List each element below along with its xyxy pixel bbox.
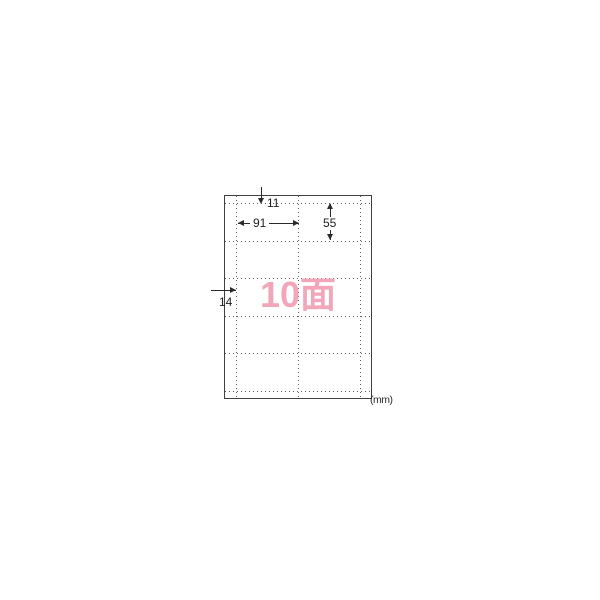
- arrow-up-icon: [327, 203, 333, 209]
- dim-label-cell-width: 91: [250, 217, 269, 230]
- arrow-down-icon: [327, 234, 333, 240]
- diagram-stage: 10面 11 91 55 14 (mm): [0, 0, 600, 600]
- perforation-line-horizontal-1: [225, 203, 371, 204]
- perforation-line-horizontal-6: [225, 391, 371, 392]
- dim-label-top-margin: 11: [267, 197, 279, 210]
- perforation-line-horizontal-2: [225, 241, 371, 242]
- arrow-left-icon: [238, 220, 244, 226]
- dim-label-cell-height: 55: [320, 217, 339, 230]
- perforation-line-horizontal-4: [225, 316, 371, 317]
- face-count-label: 10面: [225, 278, 371, 312]
- arrow-down-icon: [258, 198, 264, 204]
- perforation-line-horizontal-5: [225, 353, 371, 354]
- unit-label: (mm): [370, 394, 393, 406]
- arrow-right-icon: [293, 220, 299, 226]
